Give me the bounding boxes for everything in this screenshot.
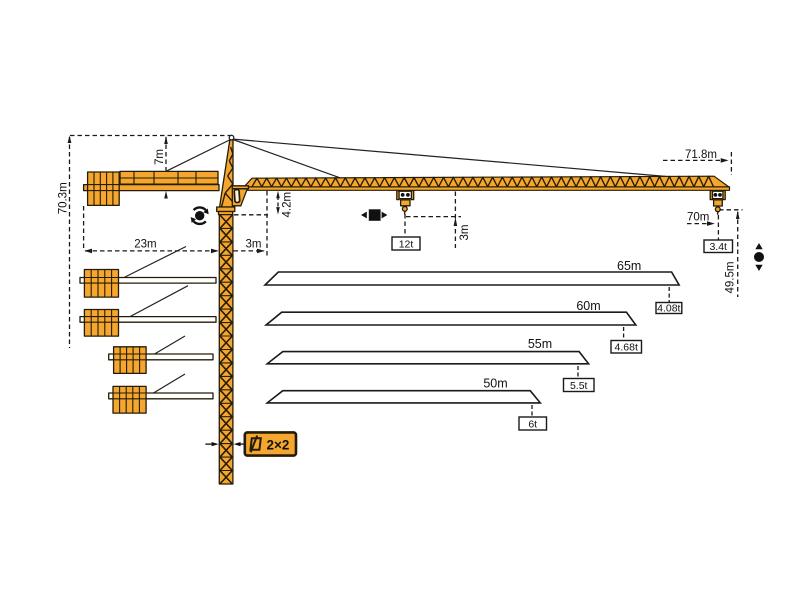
svg-text:55m: 55m — [528, 337, 552, 351]
svg-text:50m: 50m — [483, 377, 507, 391]
svg-text:60m: 60m — [576, 299, 600, 313]
svg-text:12t: 12t — [399, 238, 414, 250]
svg-text:70.3m: 70.3m — [58, 182, 70, 214]
svg-text:23m: 23m — [134, 238, 156, 250]
svg-text:71.8m: 71.8m — [685, 149, 717, 161]
svg-text:5.5t: 5.5t — [570, 380, 588, 392]
svg-text:2×2: 2×2 — [267, 438, 290, 453]
svg-text:4.2m: 4.2m — [282, 192, 294, 218]
svg-text:6t: 6t — [528, 418, 537, 430]
svg-text:65m: 65m — [617, 259, 641, 273]
svg-text:7m: 7m — [154, 149, 166, 165]
svg-text:3m: 3m — [246, 238, 262, 250]
svg-text:3.4t: 3.4t — [709, 241, 727, 253]
svg-text:70m: 70m — [687, 211, 709, 223]
svg-text:49.5m: 49.5m — [725, 262, 737, 294]
svg-text:3m: 3m — [459, 225, 471, 241]
svg-text:4.08t: 4.08t — [657, 303, 680, 315]
svg-text:4.68t: 4.68t — [615, 342, 638, 354]
